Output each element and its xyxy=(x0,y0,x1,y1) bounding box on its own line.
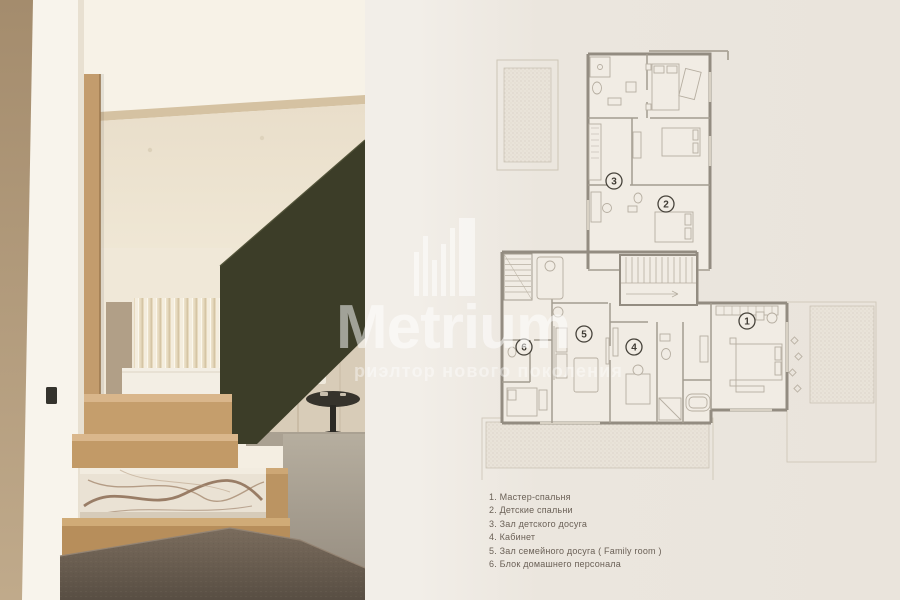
stair-landing xyxy=(84,394,232,434)
svg-text:3: 3 xyxy=(611,177,617,188)
svg-text:2: 2 xyxy=(663,200,669,211)
terrace-bottom xyxy=(482,418,713,480)
plan-legend: 1. Мастер-спальня 2. Детские спальни 3. … xyxy=(489,491,662,571)
svg-text:5: 5 xyxy=(581,330,587,341)
logo-bar xyxy=(432,260,437,296)
legend-item: 2. Детские спальни xyxy=(489,504,662,517)
svg-text:4: 4 xyxy=(631,343,637,354)
stair-core xyxy=(620,255,697,305)
marble-step-wood-cap xyxy=(266,468,288,526)
door-frame xyxy=(84,74,104,434)
bed xyxy=(655,212,693,242)
bed xyxy=(507,388,537,416)
room-marker-3: 3 xyxy=(606,173,622,189)
room-marker-2: 2 xyxy=(658,196,674,212)
bed xyxy=(662,128,700,156)
floor-plan: 1 2 3 4 5 6 xyxy=(480,40,880,480)
interior-photo xyxy=(0,0,365,600)
slat-wall xyxy=(134,298,224,378)
room-marker-5: 5 xyxy=(576,326,592,342)
presentation-page: 1 2 3 4 5 6 1. Мастер-спальня 2. Детские… xyxy=(0,0,900,600)
logo-bar xyxy=(423,236,428,296)
logo-bar xyxy=(414,252,419,296)
logo-bar xyxy=(441,244,446,296)
terrace-right xyxy=(787,302,876,462)
lounge-chaise xyxy=(537,257,563,299)
marble-step xyxy=(80,468,266,518)
legend-item: 3. Зал детского досуга xyxy=(489,518,662,531)
logo-bar xyxy=(459,218,475,296)
svg-text:6: 6 xyxy=(521,343,527,354)
logo-bar xyxy=(450,228,455,296)
legend-item: 5. Зал семейного досуга ( Family room ) xyxy=(489,545,662,558)
legend-item: 6. Блок домашнего персонала xyxy=(489,558,662,571)
secondary-stair xyxy=(504,254,532,300)
bed xyxy=(736,344,782,380)
legend-item: 1. Мастер-спальня xyxy=(489,491,662,504)
svg-text:1: 1 xyxy=(744,317,750,328)
terrace-top-left xyxy=(497,60,558,170)
wood-step-upper xyxy=(72,434,238,468)
legend-item: 4. Кабинет xyxy=(489,531,662,544)
room-marker-4: 4 xyxy=(626,339,642,355)
light-switch xyxy=(46,387,57,404)
room-marker-1: 1 xyxy=(739,313,755,329)
room-marker-6: 6 xyxy=(516,339,532,355)
bed xyxy=(652,64,679,110)
